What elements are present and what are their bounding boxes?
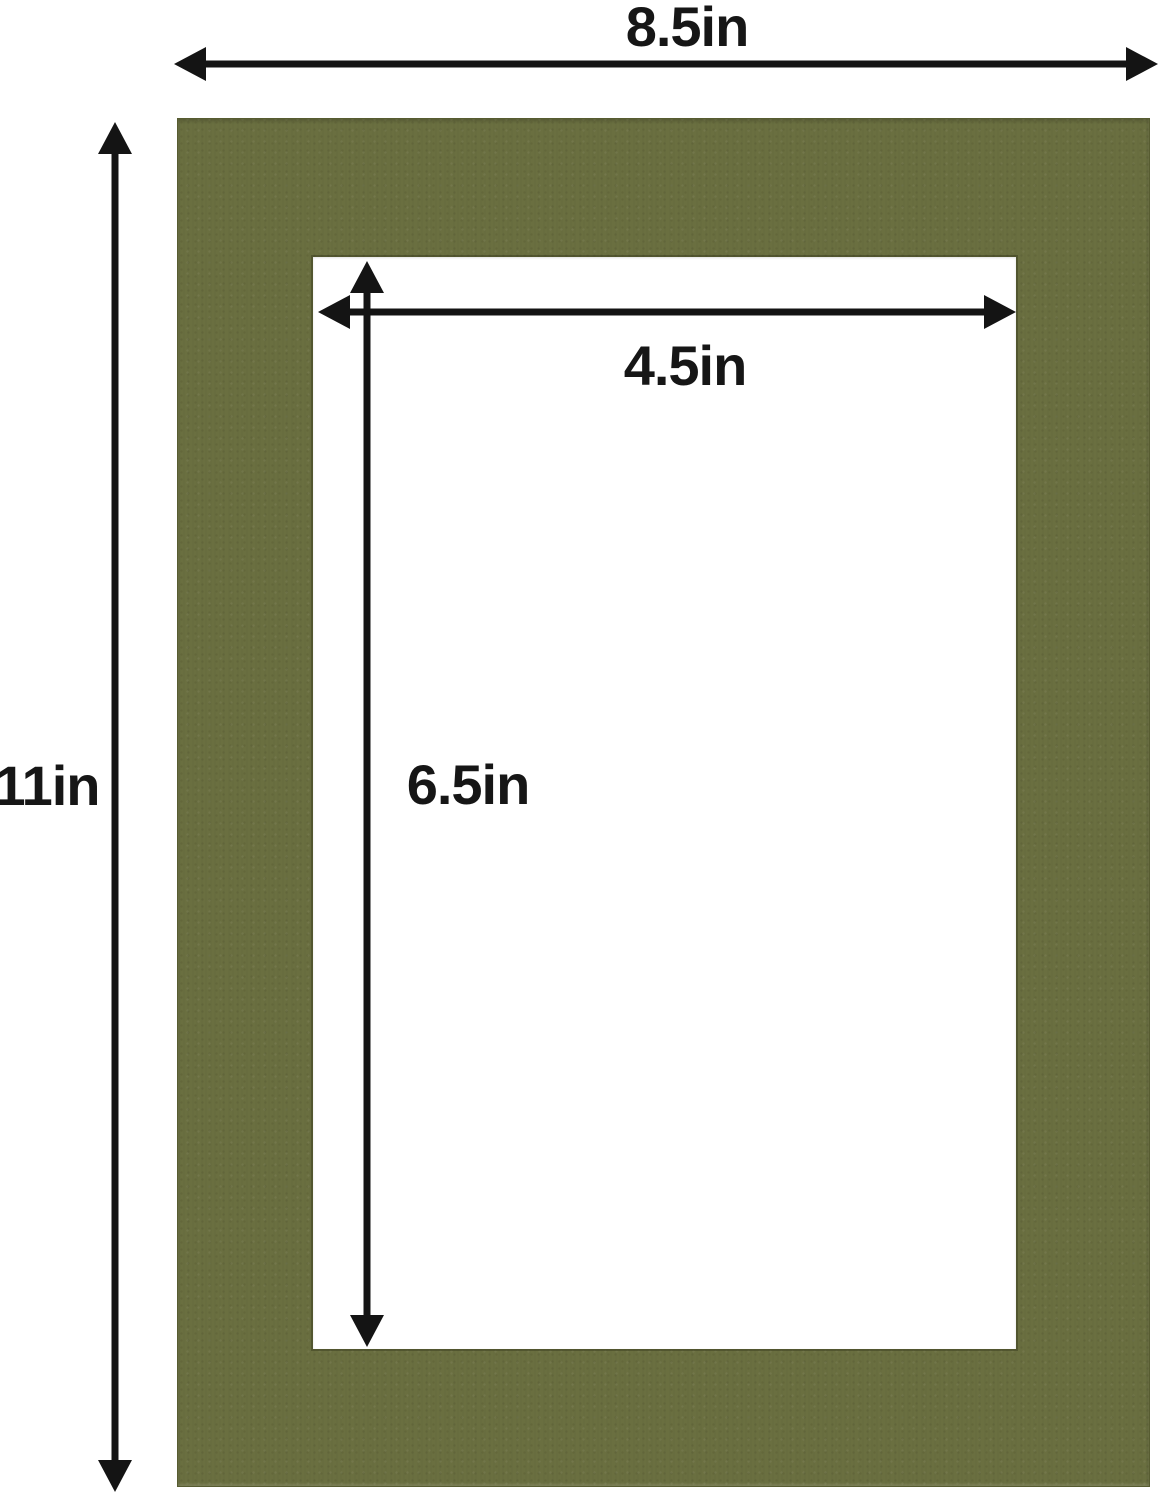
outer-height-arrow (98, 122, 132, 1492)
arrowhead-up-icon (98, 122, 132, 154)
outer-width-label: 8.5in (626, 0, 749, 55)
mat-board (177, 118, 1150, 1487)
arrowhead-left-icon (174, 47, 206, 81)
outer-height-label: 11in (0, 758, 99, 814)
arrowhead-right-icon (1126, 47, 1158, 81)
arrowhead-down-icon (98, 1460, 132, 1492)
opening-height-label: 6.5in (407, 757, 530, 813)
opening-width-label: 4.5in (624, 338, 747, 394)
mat-dimension-diagram: 8.5in 11in 4.5in 6.5in (0, 0, 1167, 1500)
